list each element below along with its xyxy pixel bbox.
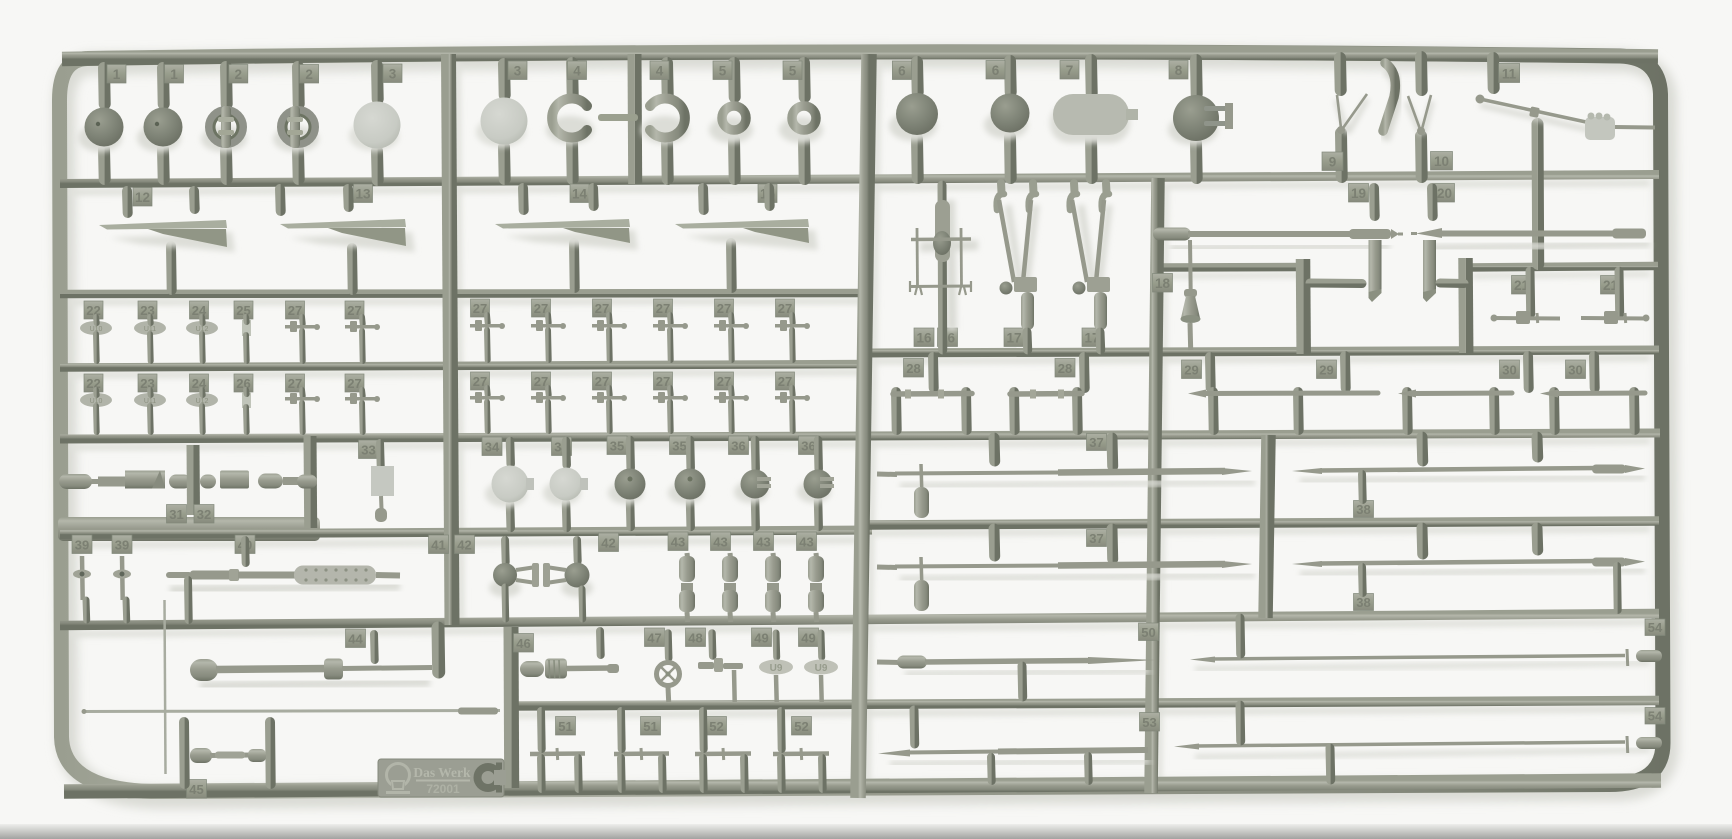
svg-text:13: 13: [355, 187, 371, 202]
svg-text:38: 38: [1356, 595, 1370, 610]
svg-text:42: 42: [457, 538, 471, 553]
svg-text:33: 33: [361, 443, 375, 458]
svg-text:10: 10: [1434, 154, 1449, 169]
svg-text:6: 6: [992, 63, 1000, 78]
svg-text:36: 36: [731, 439, 745, 454]
svg-text:41: 41: [431, 538, 445, 553]
svg-text:44: 44: [348, 632, 363, 647]
svg-text:35: 35: [672, 439, 686, 454]
svg-text:34: 34: [485, 440, 500, 455]
svg-text:39: 39: [115, 538, 129, 553]
svg-text:30: 30: [1502, 363, 1516, 378]
svg-text:28: 28: [1058, 361, 1072, 376]
svg-text:50: 50: [1141, 625, 1155, 640]
svg-text:54: 54: [1648, 709, 1663, 724]
svg-text:29: 29: [1319, 363, 1333, 378]
svg-text:12: 12: [135, 190, 150, 205]
svg-text:14: 14: [572, 187, 588, 202]
svg-text:53: 53: [1142, 715, 1156, 730]
svg-text:43: 43: [713, 535, 727, 550]
svg-text:4: 4: [573, 64, 581, 79]
svg-text:9: 9: [1329, 155, 1337, 170]
svg-text:45: 45: [189, 782, 203, 797]
svg-text:54: 54: [1648, 620, 1663, 635]
svg-text:19: 19: [1351, 186, 1366, 201]
svg-text:U9: U9: [815, 663, 828, 674]
svg-text:47: 47: [647, 631, 661, 646]
svg-text:35: 35: [610, 439, 624, 454]
svg-text:1: 1: [113, 67, 121, 82]
svg-text:5: 5: [789, 64, 797, 79]
svg-text:2: 2: [305, 67, 313, 82]
svg-text:2: 2: [235, 67, 243, 82]
svg-text:Das Werk: Das Werk: [413, 765, 471, 780]
svg-text:37: 37: [1089, 435, 1103, 450]
svg-text:4: 4: [656, 64, 664, 79]
svg-text:31: 31: [169, 507, 183, 522]
svg-text:11: 11: [1502, 67, 1517, 82]
svg-text:43: 43: [799, 535, 813, 550]
svg-text:20: 20: [1437, 186, 1452, 201]
svg-text:6: 6: [898, 64, 906, 79]
svg-text:48: 48: [688, 631, 702, 646]
svg-text:43: 43: [756, 535, 770, 550]
svg-text:1: 1: [170, 67, 178, 82]
svg-text:8: 8: [1175, 63, 1183, 78]
svg-text:52: 52: [709, 719, 723, 734]
svg-text:17: 17: [1006, 331, 1021, 346]
svg-text:28: 28: [906, 361, 920, 376]
svg-text:3: 3: [514, 64, 522, 79]
svg-text:38: 38: [1356, 502, 1370, 517]
svg-text:18: 18: [1155, 276, 1171, 291]
svg-text:32: 32: [197, 507, 211, 522]
svg-text:29: 29: [1184, 363, 1198, 378]
svg-text:16: 16: [916, 331, 932, 346]
svg-text:46: 46: [516, 636, 530, 651]
svg-text:52: 52: [794, 719, 808, 734]
svg-text:30: 30: [1568, 363, 1582, 378]
svg-text:72001: 72001: [426, 782, 460, 796]
svg-text:51: 51: [643, 719, 657, 734]
svg-text:49: 49: [801, 631, 815, 646]
svg-text:7: 7: [1066, 63, 1074, 78]
svg-text:51: 51: [558, 719, 572, 734]
svg-text:36: 36: [801, 439, 815, 454]
svg-text:3: 3: [389, 67, 397, 82]
svg-text:42: 42: [601, 536, 615, 551]
svg-text:49: 49: [754, 631, 768, 646]
svg-text:39: 39: [75, 538, 89, 553]
svg-text:5: 5: [719, 64, 727, 79]
svg-text:U9: U9: [770, 663, 783, 674]
svg-text:37: 37: [1089, 531, 1103, 546]
svg-text:43: 43: [671, 535, 685, 550]
